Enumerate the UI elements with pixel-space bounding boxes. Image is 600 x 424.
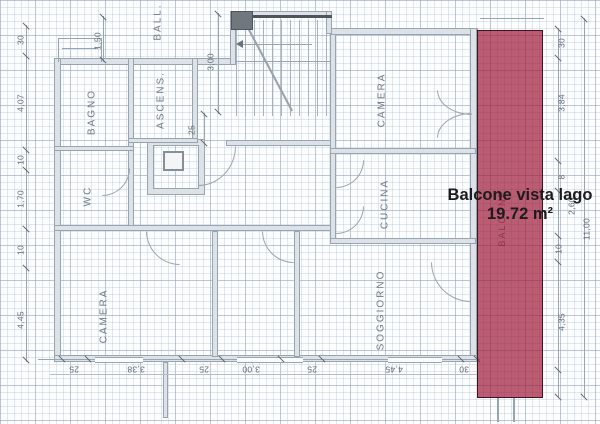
dimension-label: 4,07	[17, 94, 26, 112]
door-arc	[198, 146, 236, 186]
plan-line	[58, 38, 59, 62]
dimension-label: 10	[17, 245, 26, 255]
room-label-soggiorno: SOGGIORNO	[376, 270, 387, 351]
room-label-camera-nord: CAMERA	[377, 73, 388, 128]
wall	[294, 231, 300, 357]
window	[237, 357, 303, 363]
dimension-label: 1,50	[94, 32, 103, 50]
dimension-label: 4,35	[558, 313, 567, 331]
room-label-camera-sud: CAMERA	[99, 289, 110, 344]
door-arc	[262, 231, 294, 263]
dimension-label: 10	[17, 155, 26, 165]
room-label-cucina: CUCINA	[380, 179, 391, 229]
window	[95, 357, 143, 363]
door-arc	[336, 160, 364, 188]
door-arc	[336, 206, 364, 234]
plan-line	[497, 398, 499, 422]
plan-line	[242, 44, 312, 45]
wall	[54, 58, 61, 362]
room-label-ascensore: ASCENS.	[156, 71, 167, 129]
wall	[128, 138, 198, 143]
staircase-section-block	[231, 11, 253, 30]
dimension-label: 30	[558, 38, 567, 48]
door-arc	[431, 262, 471, 302]
dimension-label: 4,45	[17, 311, 26, 329]
elevator-cabin	[163, 151, 184, 171]
dimension-label: 1,70	[17, 190, 26, 208]
window	[388, 357, 442, 363]
plan-line	[204, 113, 205, 145]
wall	[330, 28, 478, 35]
wall	[330, 148, 476, 154]
dimension-label: 25	[188, 125, 197, 135]
balcony-annotation-line1: Balcone vista lago	[437, 186, 600, 205]
dimension-label: 10	[555, 244, 564, 254]
wall	[54, 146, 134, 151]
room-label-ballatoio: BALL.	[153, 3, 164, 40]
room-label-wc: WC	[83, 186, 94, 207]
dimension-label: 25	[307, 365, 317, 374]
door-arc	[102, 168, 130, 196]
dimension-label: 25	[199, 365, 209, 374]
dimension-label: 8	[558, 174, 567, 179]
dimension-label: 4,45	[385, 365, 403, 374]
room-label-bagno: BAGNO	[87, 89, 98, 135]
dimension-label: 30	[459, 365, 469, 374]
dimension-label: 3,38	[127, 365, 145, 374]
dimension-label: 30	[17, 35, 26, 45]
slab-line	[50, 374, 478, 375]
stair-direction-arrow	[236, 40, 243, 48]
balcony-annotation-line2: 19.72 m²	[437, 205, 600, 224]
plan-line	[26, 25, 27, 362]
floor-plan: BAGNO WC ASCENS. BALL. CAMERA CUCINA SOG…	[0, 0, 600, 424]
door-arc	[437, 113, 472, 138]
plan-line	[103, 16, 104, 62]
balcony-annotation: Balcone vista lago 19.72 m²	[437, 186, 600, 224]
staircase-landing-line	[236, 61, 330, 62]
plan-line	[513, 398, 515, 422]
plan-line	[480, 18, 544, 19]
dimension-label: 3,00	[207, 53, 216, 71]
wall	[128, 150, 134, 230]
wall	[226, 140, 332, 146]
wall	[163, 362, 168, 418]
door-arc	[437, 90, 472, 115]
door-arc	[146, 231, 180, 265]
dimension-label: 3,84	[558, 94, 567, 112]
dimension-label: 25	[69, 365, 79, 374]
plan-line	[218, 13, 219, 114]
wall	[212, 231, 218, 357]
dimension-label: 3,00	[242, 365, 260, 374]
wall	[128, 58, 134, 150]
wall	[330, 238, 476, 244]
